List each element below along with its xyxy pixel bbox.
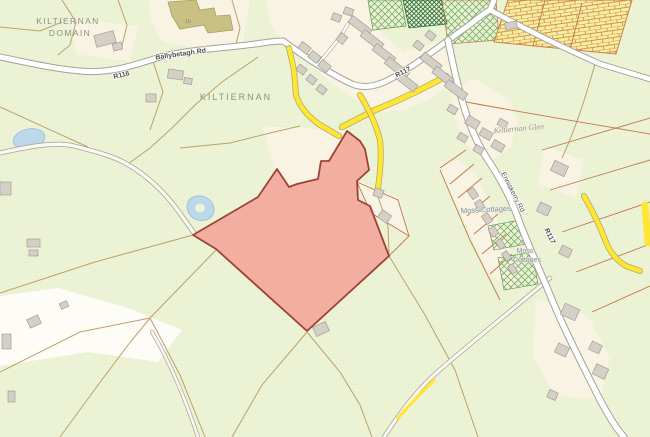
label-kiltiernan-domain-line2: DOMAIN: [49, 28, 91, 38]
building: [27, 239, 40, 247]
label-kiltiernan-village: KILTIERNAN: [200, 92, 272, 102]
building: [29, 250, 38, 256]
building: [184, 77, 193, 84]
building: [167, 69, 183, 80]
label-moss-line1: Moss: [517, 248, 534, 255]
pond-island: [195, 204, 205, 212]
building: [0, 182, 11, 195]
label-kiltiernan-domain-line1: KILTIERNAN: [36, 16, 99, 26]
map-viewport[interactable]: KILTIERNAN DOMAIN KILTIERNAN Ballybetagh…: [0, 0, 650, 437]
building: [2, 334, 11, 349]
map-canvas[interactable]: KILTIERNAN DOMAIN KILTIERNAN Ballybetagh…: [0, 0, 650, 437]
building: [8, 391, 15, 402]
label-building-ref: 1b: [185, 19, 191, 25]
label-moss-line2: Cottages: [513, 257, 542, 264]
building: [146, 94, 156, 102]
